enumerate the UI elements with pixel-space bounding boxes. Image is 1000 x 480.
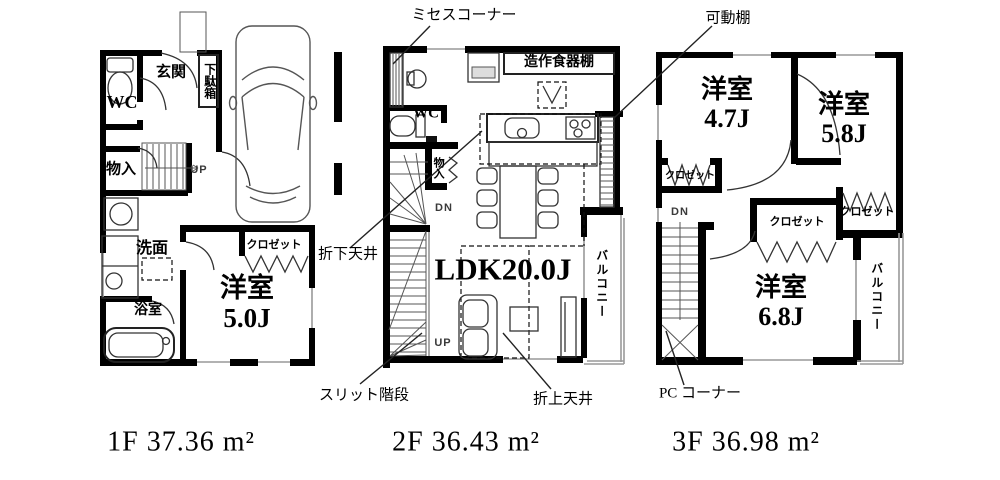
ceiling-dashed-outlines xyxy=(461,114,601,358)
callout-raised-ceiling: 折上天井 xyxy=(533,392,593,409)
stairs-3f xyxy=(662,222,698,360)
callout-movable-shelf: 可動棚 xyxy=(705,11,750,28)
washing-machine-icon xyxy=(104,198,138,230)
storage2-door xyxy=(449,157,457,183)
callout-slit-stairs: スリット階段 xyxy=(319,388,409,405)
label-2f-balcony: バルコニー xyxy=(594,249,607,319)
car-icon xyxy=(230,26,317,222)
label-1f-washroom: 洗面 xyxy=(136,240,168,258)
kitchen-counter xyxy=(487,114,598,166)
label-1f-closet: クロゼット xyxy=(247,239,302,251)
label-3f-closet3: クロゼット xyxy=(840,206,895,218)
callout-pc-corner: PC コーナー xyxy=(659,386,741,403)
label-2f-storage: 物入 xyxy=(432,157,444,179)
label-2f-up: UP xyxy=(434,337,451,349)
callout-lowered-ceiling: 折下天井 xyxy=(318,247,378,264)
winder-stairs-2f xyxy=(390,153,428,224)
label-3f-bedroom1: 洋室 4.7J xyxy=(701,75,753,133)
area-label-3f: 3F 36.98 m² xyxy=(672,426,820,457)
area-label-2f: 2F 36.43 m² xyxy=(392,426,540,457)
wall-cabinet-icon xyxy=(468,53,499,82)
label-3f-dn: DN xyxy=(671,206,689,218)
area-label-1f: 1F 37.36 m² xyxy=(107,426,255,457)
tv-board-icon xyxy=(561,297,576,357)
label-1f-storage: 物入 xyxy=(106,162,136,179)
label-3f-bedroom1-name: 洋室 xyxy=(701,75,753,104)
label-3f-bedroom3: 洋室 6.8J xyxy=(755,273,807,331)
label-3f-bedroom3-name: 洋室 xyxy=(755,273,807,302)
movable-shelf-hatch xyxy=(600,117,614,207)
label-1f-bedroom-name: 洋室 xyxy=(220,273,274,303)
label-3f-closet1: クロゼット xyxy=(665,170,715,181)
label-3f-closet2: クロゼット xyxy=(770,216,825,228)
label-1f-bathroom: 浴室 xyxy=(134,303,162,319)
floor2-plan xyxy=(383,46,624,368)
label-2f-ldk: LDK20.0J xyxy=(435,253,572,288)
floorplan-page: ミセスコーナー 可動棚 折下天井 スリット階段 折上天井 PC コーナー WC … xyxy=(0,0,1000,480)
label-1f-entrance: 玄関 xyxy=(156,65,186,82)
refrigerator-space xyxy=(538,82,566,108)
dining-table-icon xyxy=(477,166,558,238)
label-1f-wc: WC xyxy=(107,92,138,112)
coffee-table-icon xyxy=(510,307,538,331)
label-3f-bedroom2-size: 5.8J xyxy=(821,119,867,148)
label-3f-bedroom2: 洋室 5.8J xyxy=(818,90,870,148)
straight-stairs-2f xyxy=(389,231,429,356)
label-2f-wc: WC xyxy=(413,106,439,123)
label-1f-up: UP xyxy=(190,164,207,176)
label-2f-cupboard: 造作食器棚 xyxy=(524,55,594,71)
label-2f-dn: DN xyxy=(435,202,453,214)
label-1f-bedroom-size: 5.0J xyxy=(223,303,270,333)
sofa-icon xyxy=(459,295,497,359)
label-3f-bedroom2-name: 洋室 xyxy=(818,90,870,119)
label-3f-bedroom3-size: 6.8J xyxy=(758,302,804,331)
callout-mrs-corner: ミセスコーナー xyxy=(411,8,516,25)
label-3f-bedroom1-size: 4.7J xyxy=(704,104,750,133)
label-3f-balcony: バルコニー xyxy=(869,262,882,332)
closet-folding-door-1f xyxy=(245,256,308,272)
label-1f-shoe-cabinet: 下駄箱 xyxy=(202,63,215,99)
label-1f-bedroom: 洋室 5.0J xyxy=(220,273,274,333)
